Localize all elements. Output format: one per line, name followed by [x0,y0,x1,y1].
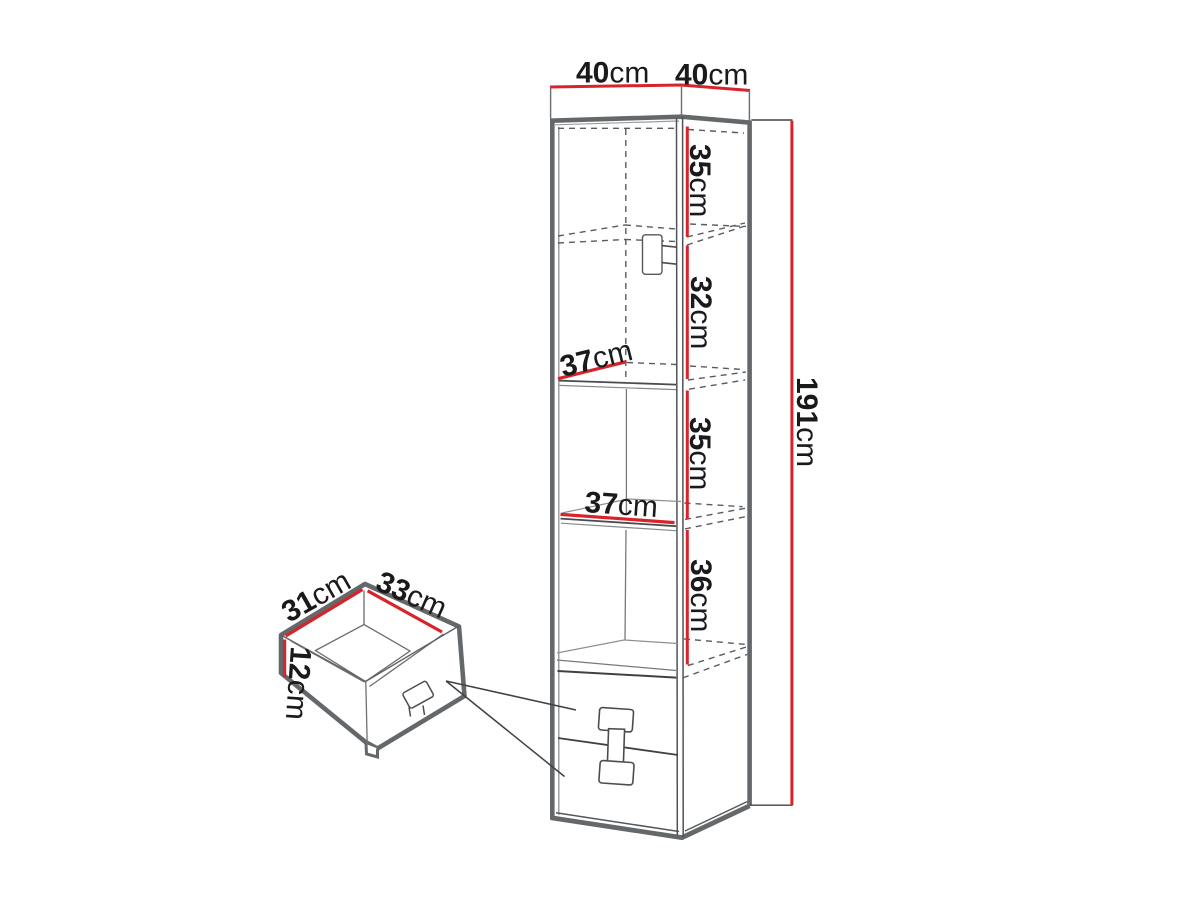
svg-text:35cm: 35cm [683,144,716,217]
svg-text:36cm: 36cm [684,559,717,632]
svg-text:37cm: 37cm [584,486,659,524]
svg-text:40cm: 40cm [576,57,649,90]
svg-text:35cm: 35cm [683,417,716,490]
svg-text:40cm: 40cm [675,59,748,92]
svg-text:32cm: 32cm [684,276,717,349]
svg-text:12cm: 12cm [279,646,317,721]
svg-text:191cm: 191cm [790,377,823,467]
